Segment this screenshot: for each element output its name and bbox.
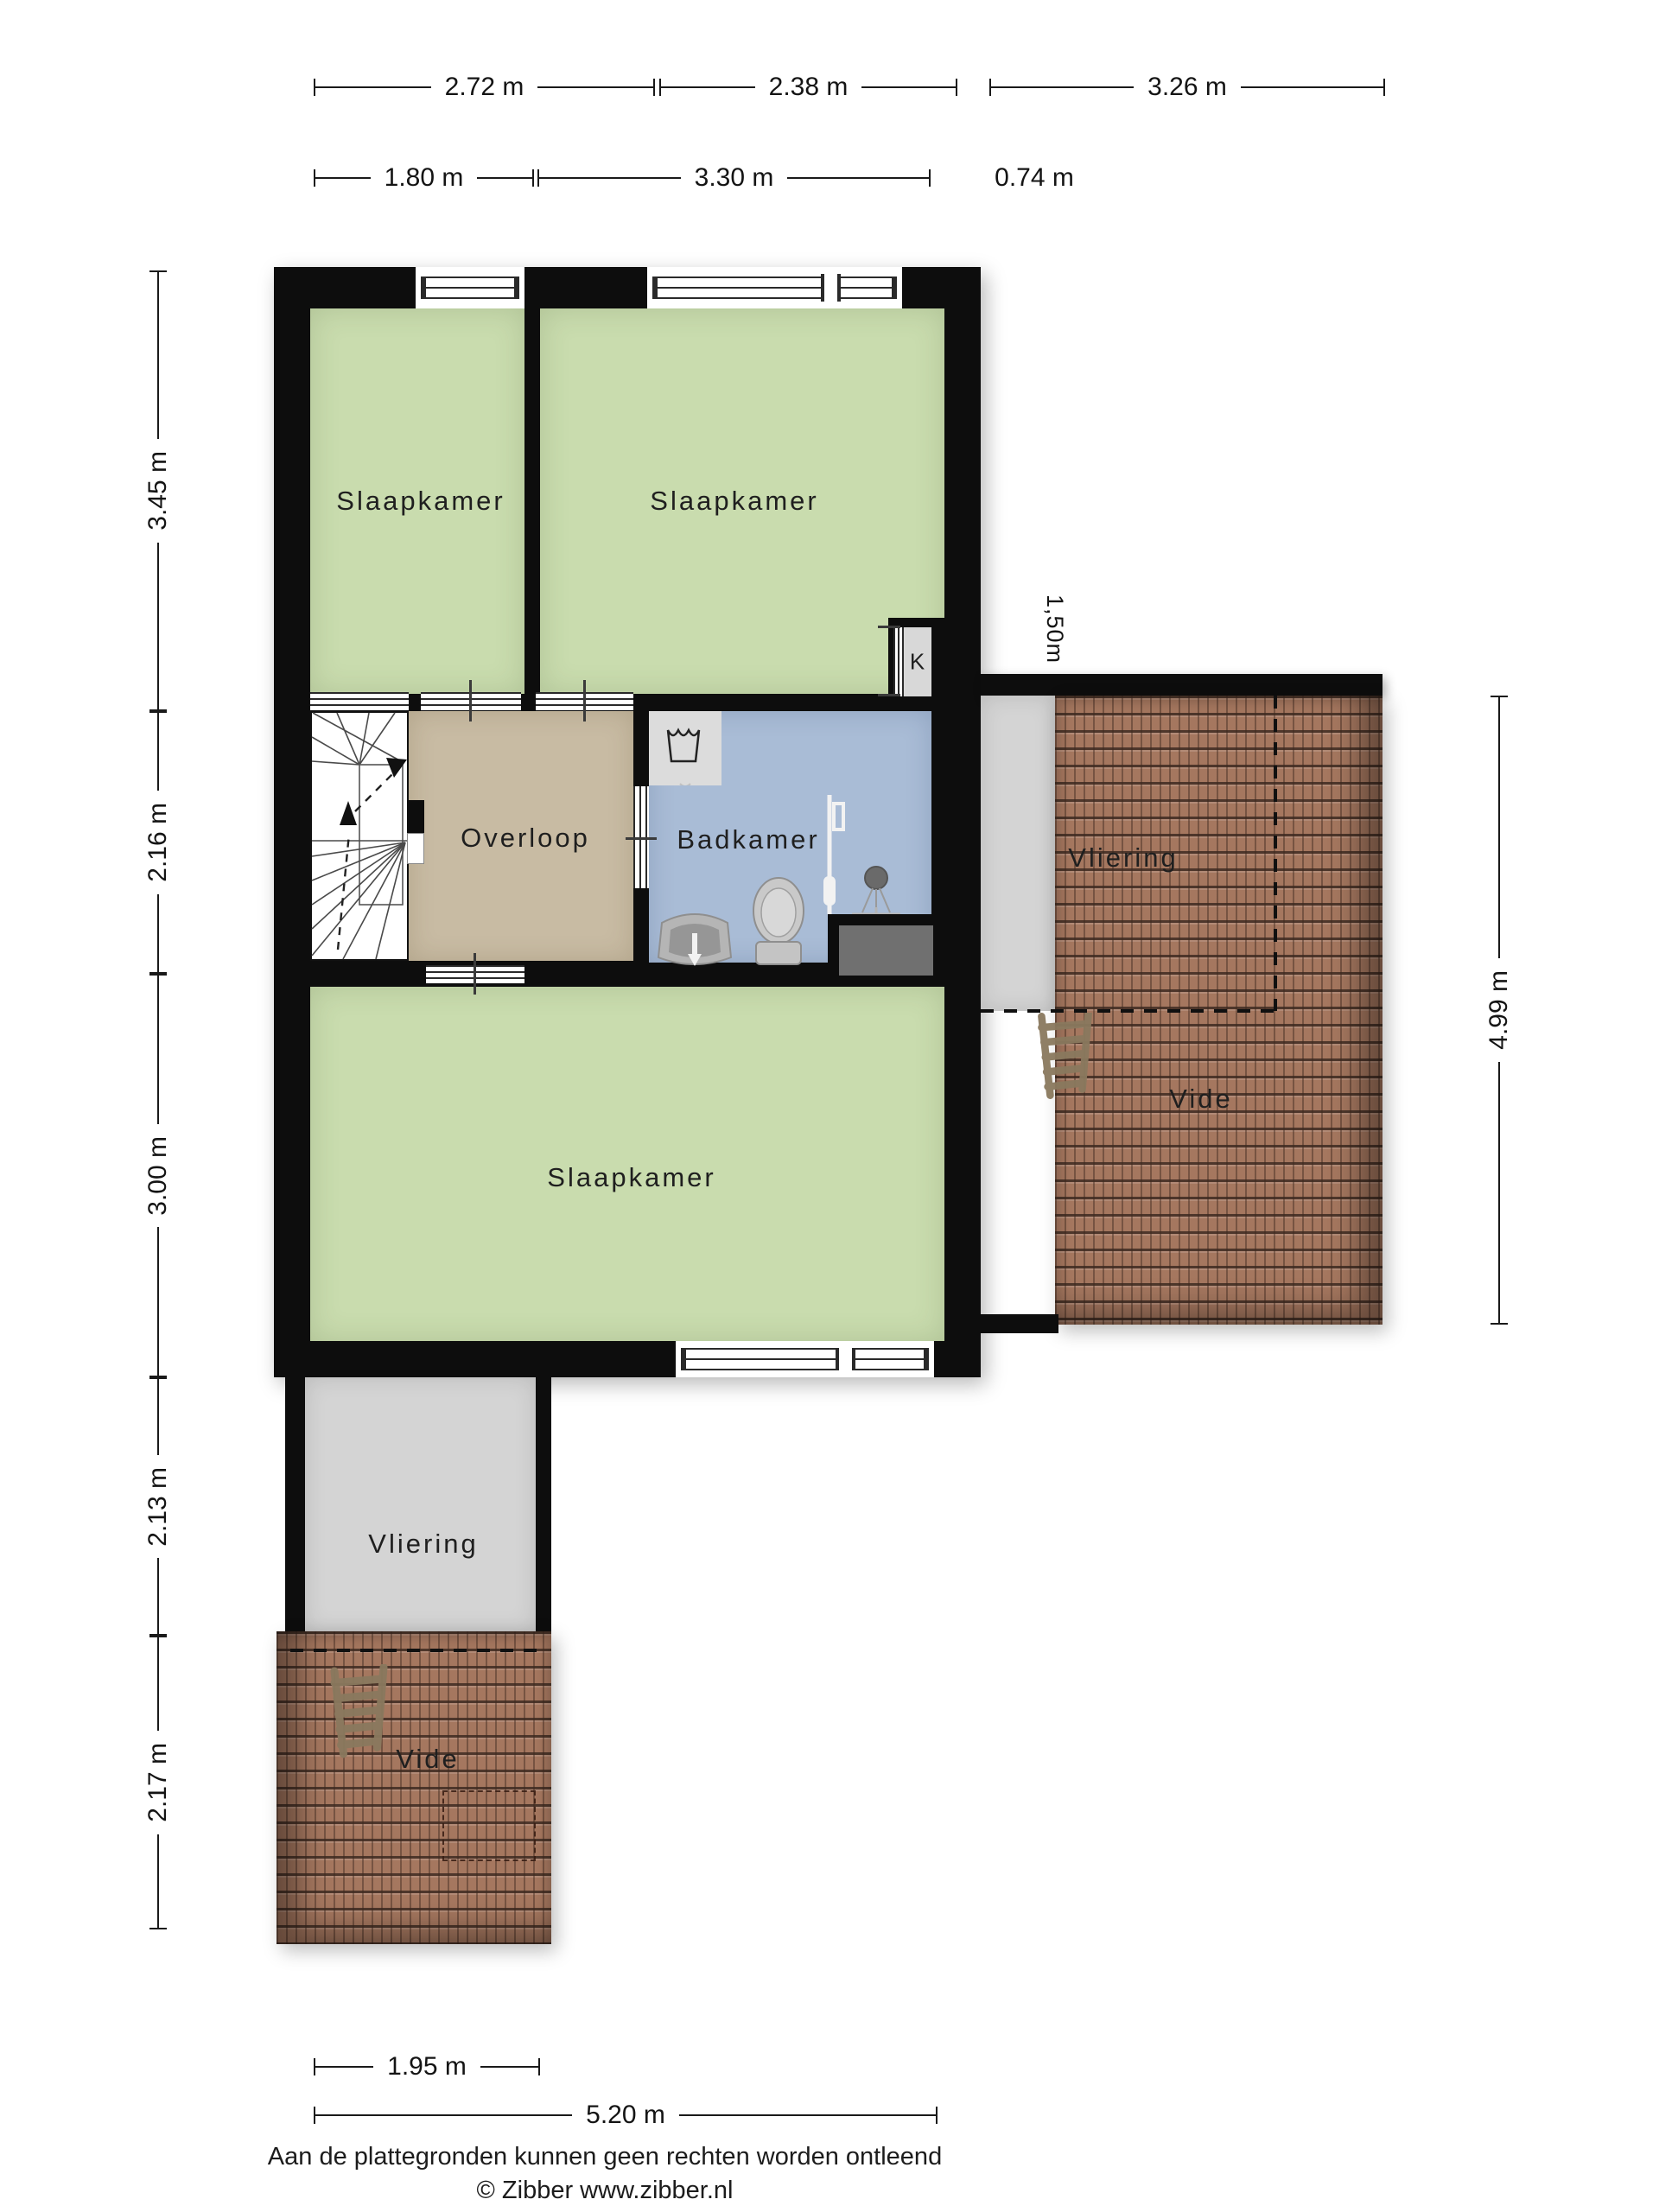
extension-bottom-right-wall bbox=[536, 1377, 551, 1631]
dimension-right-1: 4.99 m bbox=[1484, 696, 1515, 1325]
stairs-door-leaf bbox=[407, 833, 424, 864]
stairs-door-jamb bbox=[407, 800, 424, 833]
room-label-bathroom: Badkamer bbox=[677, 824, 819, 855]
dimension-label: 1.80 m bbox=[371, 163, 478, 193]
door-tick bbox=[469, 680, 472, 721]
room-label-bedroom-bottom: Slaapkamer bbox=[547, 1162, 715, 1193]
dimension-label: 2.13 m bbox=[143, 1455, 173, 1559]
roof-vide-bottom bbox=[276, 1631, 551, 1944]
dimension-bottom-2: 5.20 m bbox=[314, 2100, 938, 2131]
room-attic-right bbox=[981, 696, 1055, 1011]
ladder-icon bbox=[321, 1664, 399, 1761]
room-label-landing: Overloop bbox=[461, 823, 590, 854]
dimension-label: 3.00 m bbox=[143, 1124, 173, 1228]
headroom-dashed-line-horizontal bbox=[981, 1009, 1275, 1013]
closet-tick bbox=[878, 694, 900, 696]
shower-tray bbox=[828, 914, 944, 987]
dimension-top-5: 3.30 m bbox=[537, 162, 931, 194]
extension-right-top-wall bbox=[981, 674, 1382, 696]
dimension-label: 3.45 m bbox=[143, 439, 173, 543]
door-tick bbox=[583, 680, 586, 721]
room-label-void-bottom: Vide bbox=[396, 1744, 460, 1775]
window bbox=[676, 1341, 934, 1377]
dimension-left-3: 3.00 m bbox=[143, 974, 174, 1377]
dimension-label: 4.99 m bbox=[1484, 958, 1514, 1062]
washing-machine-icon bbox=[649, 711, 721, 785]
dimension-label: 2.72 m bbox=[431, 73, 538, 102]
footer-disclaimer: Aan de plattegronden kunnen geen rechten… bbox=[0, 2143, 1210, 2171]
dimension-top-2: 2.38 m bbox=[659, 72, 957, 103]
door-tick bbox=[626, 837, 657, 840]
room-label-bedroom-top-left: Slaapkamer bbox=[336, 486, 505, 517]
door-tick bbox=[474, 953, 476, 995]
room-label-attic-right: Vliering bbox=[1068, 842, 1178, 874]
room-label-void-right: Vide bbox=[1169, 1084, 1233, 1115]
dimension-top-1: 2.72 m bbox=[314, 72, 655, 103]
window bbox=[647, 267, 902, 308]
dimension-label: 1.95 m bbox=[373, 2052, 480, 2082]
dimension-left-4: 2.13 m bbox=[143, 1377, 174, 1636]
dimension-label: 3.26 m bbox=[1134, 73, 1241, 102]
room-label-bedroom-top-right: Slaapkamer bbox=[650, 486, 818, 517]
floorplan-canvas: 2.72 m 2.38 m 3.26 m 1.80 m 3.30 m 0.74 … bbox=[0, 0, 1659, 2212]
dimension-label: 2.17 m bbox=[143, 1731, 173, 1834]
window-mullion bbox=[836, 1348, 855, 1370]
window-mullion bbox=[821, 274, 841, 302]
dimension-label: 0.74 m bbox=[981, 163, 1088, 193]
dimension-top-3: 3.26 m bbox=[989, 72, 1385, 103]
stairwell-opening bbox=[310, 692, 409, 710]
dimension-left-1: 3.45 m bbox=[143, 270, 174, 711]
window bbox=[416, 267, 524, 308]
room-label-closet: K bbox=[910, 649, 925, 676]
closet-tick bbox=[878, 626, 900, 628]
sink-icon bbox=[653, 911, 736, 969]
shower-icon bbox=[819, 793, 906, 925]
dimension-label: 3.30 m bbox=[681, 163, 788, 193]
dimension-label: 2.38 m bbox=[755, 73, 862, 102]
dimension-left-5: 2.17 m bbox=[143, 1636, 174, 1929]
dimension-label: 2.16 m bbox=[143, 791, 173, 894]
headroom-annotation: 1,50m bbox=[1041, 594, 1068, 664]
extension-bottom-left-wall bbox=[285, 1377, 305, 1631]
dimension-bottom-1: 1.95 m bbox=[314, 2051, 540, 2082]
footer-copyright: © Zibber www.zibber.nl bbox=[0, 2177, 1210, 2205]
dimension-left-2: 2.16 m bbox=[143, 711, 174, 974]
dimension-top-4: 1.80 m bbox=[314, 162, 534, 194]
room-attic-bottom bbox=[305, 1377, 536, 1631]
extension-right-bottom-wall bbox=[981, 1314, 1058, 1333]
vide-dashed-line bbox=[290, 1649, 543, 1652]
headroom-dashed-line-vertical bbox=[1274, 696, 1277, 1011]
stairs-icon bbox=[310, 711, 409, 961]
dimension-label: 5.20 m bbox=[572, 2101, 679, 2130]
ladder-icon bbox=[1028, 1013, 1104, 1099]
dimension-top-6: 0.74 m bbox=[965, 162, 1103, 194]
vide-dashed-rect bbox=[442, 1790, 536, 1861]
room-label-attic-bottom: Vliering bbox=[368, 1529, 478, 1560]
toilet-icon bbox=[750, 876, 807, 966]
closet-vent-icon bbox=[893, 627, 904, 696]
